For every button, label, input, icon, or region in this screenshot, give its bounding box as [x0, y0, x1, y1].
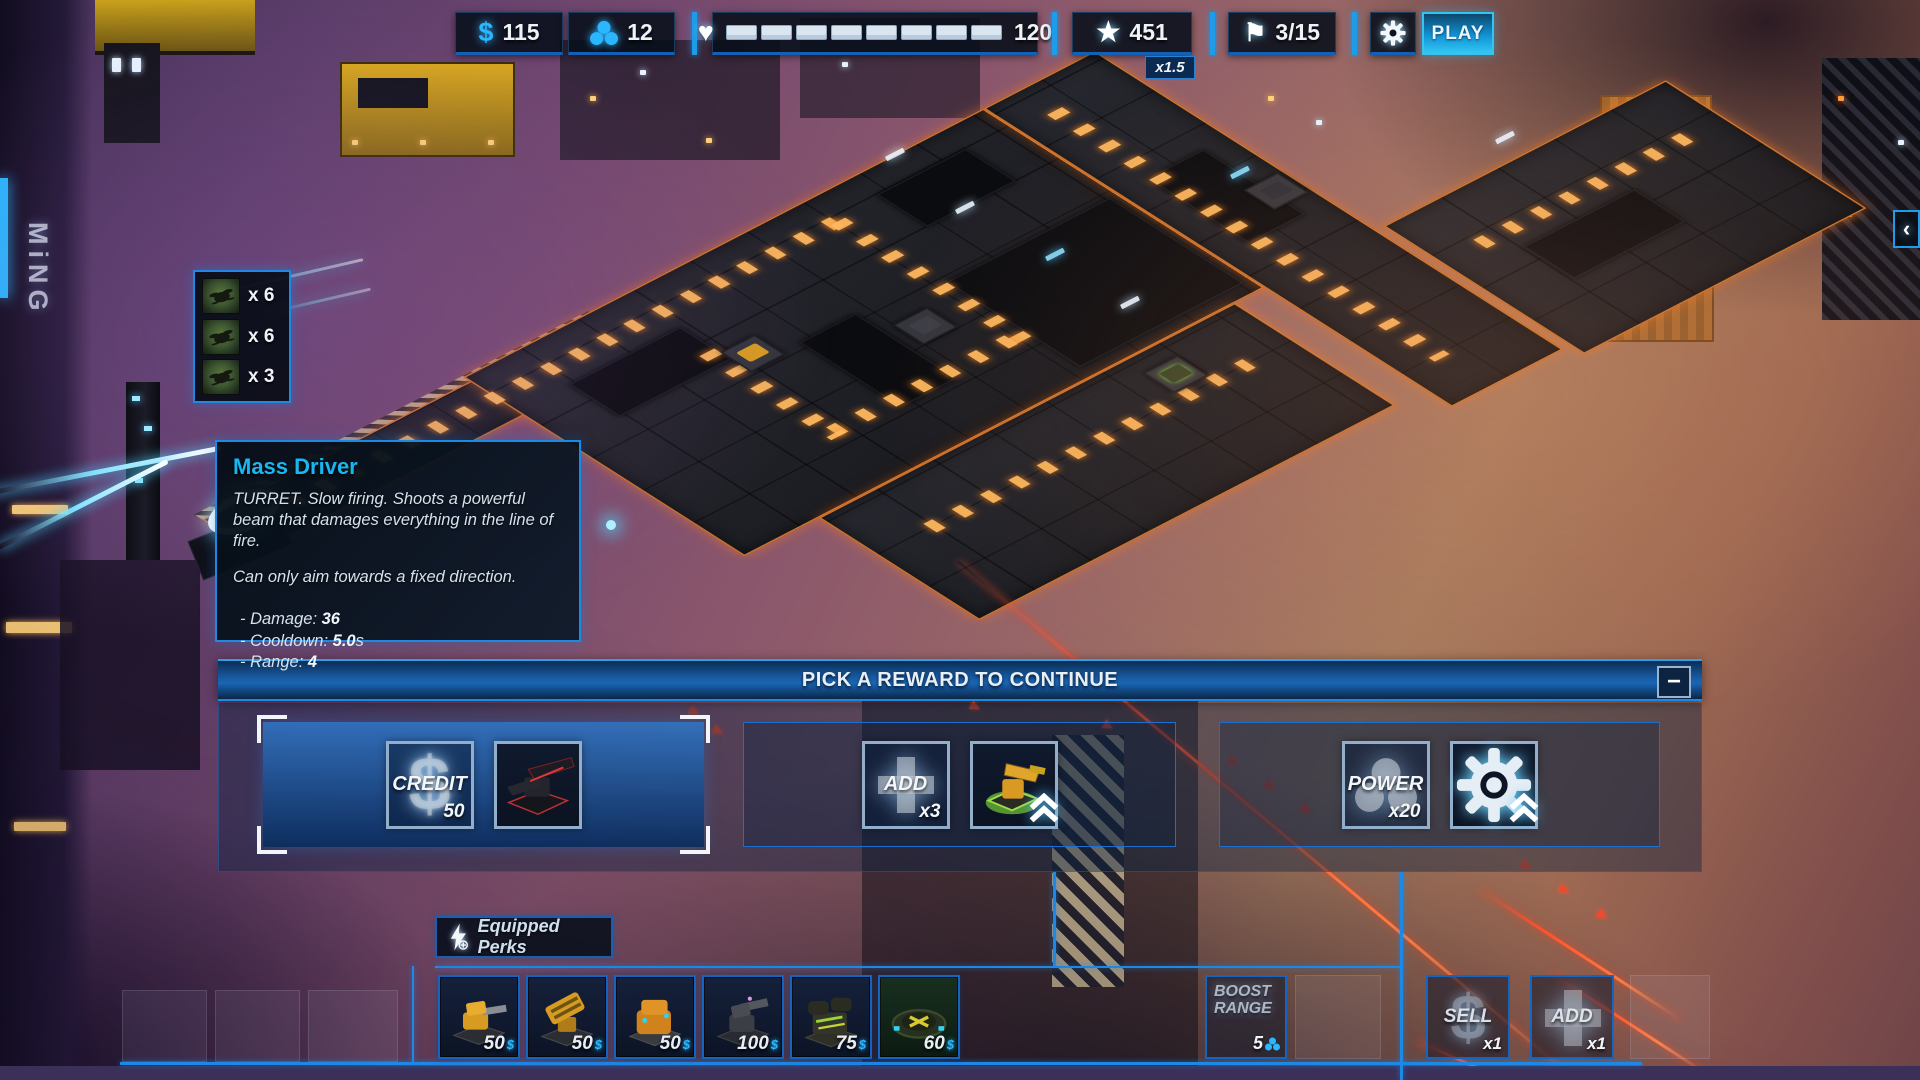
enemy-thumbnail [202, 278, 240, 314]
upgraded-turret-image [970, 741, 1058, 829]
play-label: PLAY [1432, 23, 1485, 45]
add-button[interactable]: ADD x1 [1530, 975, 1614, 1059]
reward-kind-label: POWER [1348, 773, 1424, 796]
health-bar [726, 25, 1002, 40]
empty-slot [308, 990, 398, 1062]
collapse-panel-button[interactable]: ‹ [1893, 210, 1920, 248]
mass-driver-turret-image [494, 741, 582, 829]
population-value: 12 [627, 19, 653, 46]
shop-mine[interactable]: 60$ [878, 975, 960, 1059]
hud-frame-line [1400, 872, 1403, 1080]
currency-icon: $ [947, 1037, 954, 1052]
health-segment [831, 25, 862, 40]
turret-tooltip: Mass Driver TURRET. Slow firing. Shoots … [215, 440, 581, 642]
flag-icon: ⚑ [1244, 18, 1266, 48]
power-reward-tile: POWER x20 [1342, 741, 1430, 829]
price-tag: 50$ [572, 1033, 602, 1055]
score-multiplier-badge: x1.5 [1145, 56, 1195, 79]
enemy-row: x 6 [202, 319, 282, 355]
credits-icon: $ [478, 17, 493, 48]
play-button[interactable]: PLAY [1422, 12, 1494, 55]
price-tag: 75$ [836, 1033, 866, 1055]
empty-slot [215, 990, 300, 1062]
equipped-perks-label: Equipped Perks [478, 916, 599, 958]
reward-amount: x3 [919, 801, 940, 823]
enemy-thumbnail [202, 359, 240, 395]
add-count: x1 [1587, 1034, 1606, 1054]
selection-bracket [680, 715, 710, 743]
population-icon [590, 20, 618, 46]
sell-button[interactable]: $ SELL x1 [1426, 975, 1510, 1059]
shop-turret-cannon[interactable]: 100$ [702, 975, 784, 1059]
credits-panel: $ 115 [455, 12, 563, 55]
health-segment [796, 25, 827, 40]
stat-range: - Range: 4 [240, 652, 563, 673]
price-tag: 60$ [924, 1033, 954, 1055]
tooltip-description: TURRET. Slow firing. Shoots a powerful b… [233, 489, 563, 552]
reward-card-credit[interactable]: $ CREDIT 50 [263, 722, 704, 847]
enemy-count: x 6 [248, 326, 274, 348]
credit-reward-tile: $ CREDIT 50 [386, 741, 474, 829]
enemy-count: x 6 [248, 285, 274, 307]
shop-turret-twin[interactable]: 75$ [790, 975, 872, 1059]
price-tag: 50$ [660, 1033, 690, 1055]
selection-bracket [257, 715, 287, 743]
enemy-count: x 3 [248, 366, 274, 388]
currency-icon: $ [859, 1037, 866, 1052]
topbar-divider [1210, 12, 1215, 55]
truck-light [420, 140, 426, 145]
selection-bracket [257, 826, 287, 854]
enemy-row: x 6 [202, 278, 282, 314]
score-multiplier-value: x1.5 [1155, 59, 1184, 76]
reward-card-power[interactable]: POWER x20 [1219, 722, 1660, 847]
power-icon [1265, 1037, 1280, 1051]
boost-range-button[interactable]: BOOST RANGE 5 [1205, 975, 1287, 1059]
boost-range-cost: 5 [1253, 1033, 1280, 1054]
building-sign: MiNG [22, 222, 53, 317]
chevron-left-icon: ‹ [1903, 216, 1910, 242]
window-light [842, 62, 848, 67]
window-light [590, 96, 596, 101]
stat-cooldown: - Cooldown: 5.0s [240, 631, 563, 652]
currency-icon: $ [771, 1037, 778, 1052]
equipped-perks-button[interactable]: Equipped Perks [435, 916, 613, 958]
gear-icon [1379, 19, 1407, 47]
wave-panel: ⚑ 3/15 [1228, 12, 1336, 55]
health-value: 120 [1014, 19, 1052, 46]
hud-frame-line [412, 966, 414, 1062]
stat-damage: - Damage: 36 [240, 609, 563, 630]
truck-light [352, 140, 358, 145]
truck-light [488, 140, 494, 145]
score-value: 451 [1129, 19, 1167, 46]
hud-frame-line [120, 1062, 1642, 1065]
health-segment [971, 25, 1002, 40]
heart-icon: ♥ [698, 17, 714, 48]
price-tag: 50$ [484, 1033, 514, 1055]
star-icon: ★ [1096, 17, 1120, 48]
reward-kind-label: CREDIT [392, 773, 466, 796]
window-light [640, 70, 646, 75]
reward-amount: x20 [1389, 801, 1421, 823]
reward-amount: 50 [443, 801, 464, 823]
topbar-divider [1052, 12, 1057, 55]
upgrade-chevron-icon [1027, 793, 1061, 830]
scaffold-light [1898, 140, 1904, 145]
shop-turret-rockets[interactable]: 50$ [526, 975, 608, 1059]
bottom-strip [0, 1066, 1920, 1080]
window-light [14, 822, 66, 831]
score-panel: ★ 451 [1072, 12, 1192, 55]
tooltip-title: Mass Driver [233, 454, 563, 480]
window-light [132, 58, 141, 72]
window-light [112, 58, 121, 72]
add-reward-tile: ADD x3 [862, 741, 950, 829]
minimize-button[interactable]: − [1657, 666, 1691, 698]
empty-slot [122, 990, 207, 1062]
health-segment [726, 25, 757, 40]
power-gear-image [1450, 741, 1538, 829]
scaffold-light [1838, 96, 1844, 101]
minus-icon: − [1667, 668, 1681, 696]
sell-label: SELL [1444, 1006, 1493, 1028]
health-segment [936, 25, 967, 40]
hud-frame-line [435, 966, 1402, 968]
population-panel: 12 [568, 12, 675, 55]
window-light [1268, 96, 1274, 101]
sell-count: x1 [1483, 1034, 1502, 1054]
enemy-thumbnail [202, 319, 240, 355]
selection-bracket [680, 826, 710, 854]
currency-icon: $ [595, 1037, 602, 1052]
reward-kind-label: ADD [884, 773, 927, 796]
boost-range-label: BOOST RANGE [1214, 983, 1272, 1018]
window-light [706, 138, 712, 143]
empty-slot [1630, 975, 1710, 1059]
credits-value: 115 [502, 19, 539, 46]
health-segment [866, 25, 897, 40]
shop-turret-minigun[interactable]: 50$ [438, 975, 520, 1059]
settings-button[interactable] [1370, 12, 1416, 55]
tooltip-stats: - Damage: 36 - Cooldown: 5.0s - Range: 4 [240, 609, 563, 672]
truck-windshield [358, 78, 428, 108]
wave-enemy-preview: x 6 x 6 x 3 [193, 270, 291, 403]
hud-frame-line [1053, 872, 1056, 966]
reward-card-add-turret[interactable]: ADD x3 [743, 722, 1176, 847]
price-tag: 100$ [737, 1033, 778, 1055]
currency-icon: $ [683, 1037, 690, 1052]
reward-panel-title: PICK A REWARD TO CONTINUE [802, 669, 1118, 692]
game-screen: MiNG [0, 0, 1920, 1080]
health-segment [901, 25, 932, 40]
shop-turret-heavy[interactable]: 50$ [614, 975, 696, 1059]
enemy-row: x 3 [202, 359, 282, 395]
currency-icon: $ [507, 1037, 514, 1052]
window-light [1316, 120, 1322, 125]
topbar-divider [692, 12, 697, 55]
lightning-bolt-icon [449, 922, 469, 952]
health-panel: ♥ 120 [712, 12, 1038, 55]
topbar-divider [1352, 12, 1357, 55]
wave-value: 3/15 [1275, 19, 1320, 46]
health-segment [761, 25, 792, 40]
distant-building [60, 560, 200, 770]
upgrade-chevron-icon [1507, 793, 1541, 830]
empty-slot [1295, 975, 1381, 1059]
add-label: ADD [1551, 1006, 1592, 1028]
reward-panel: PICK A REWARD TO CONTINUE − $ CREDIT 50 [218, 659, 1702, 872]
cyan-sign-strip [0, 178, 8, 298]
energy-orb [606, 520, 616, 530]
tooltip-note: Can only aim towards a fixed direction. [233, 567, 563, 588]
